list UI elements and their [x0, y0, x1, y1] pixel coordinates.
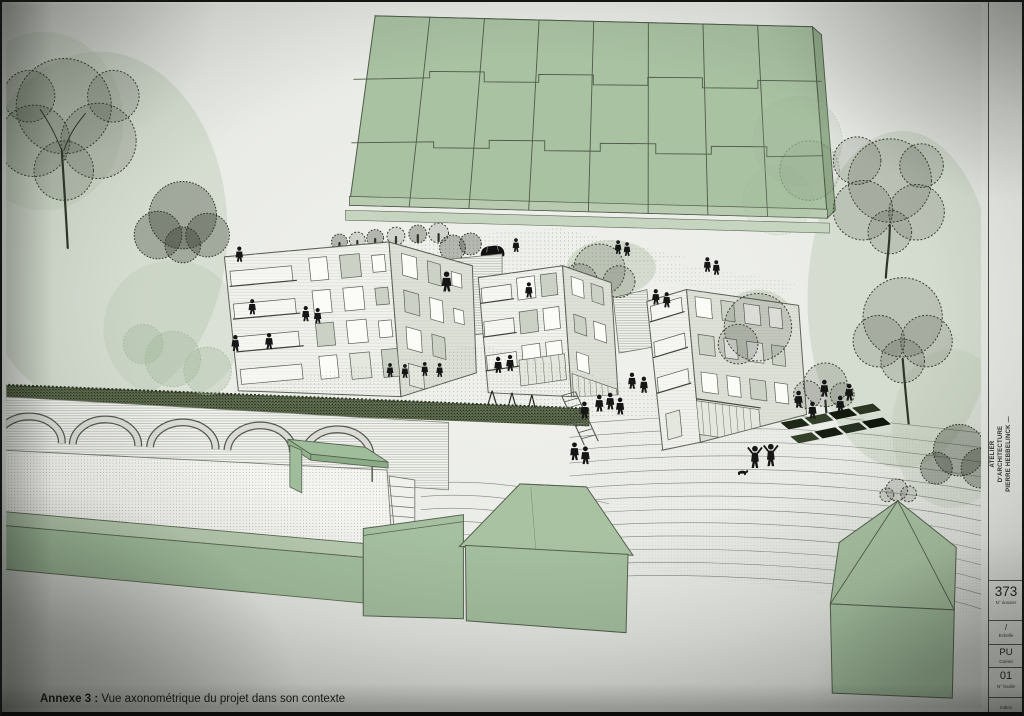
carnet-value: PU	[989, 648, 1023, 658]
feuille-label: N° feuille	[989, 684, 1023, 689]
field-dossier: 373 N° dossier	[989, 580, 1023, 625]
drawing-sheet: ATELIER D'ARCHITECTURE PIERRE HEBBELINCK…	[0, 0, 1024, 716]
axonometric-drawing	[2, 2, 1022, 712]
field-feuille: 01 N° feuille	[989, 667, 1023, 701]
carnet-label: Carnet	[989, 659, 1023, 664]
dossier-number: 373	[989, 585, 1023, 599]
firm-name-vertical: ATELIER D'ARCHITECTURE PIERRE HEBBELINCK…	[989, 394, 1023, 516]
caption: Annexe 3 : Vue axonométrique du projet d…	[40, 693, 345, 705]
background-building	[349, 16, 842, 235]
caption-label: Annexe 3 :	[40, 693, 98, 705]
feuille-value: 01	[989, 671, 1023, 683]
firm-name: ATELIER D'ARCHITECTURE PIERRE HEBBELINCK…	[989, 393, 1023, 515]
field-indice: Indice	[989, 697, 1023, 716]
title-block: ATELIER D'ARCHITECTURE PIERRE HEBBELINCK…	[988, 2, 1023, 714]
dossier-label: N° dossier	[989, 600, 1023, 605]
echelle-value: /	[989, 624, 1023, 632]
echelle-label: Echelle	[989, 633, 1023, 638]
caption-text: Vue axonométrique du projet dans son con…	[98, 693, 345, 705]
indice-label: Indice	[989, 705, 1023, 710]
